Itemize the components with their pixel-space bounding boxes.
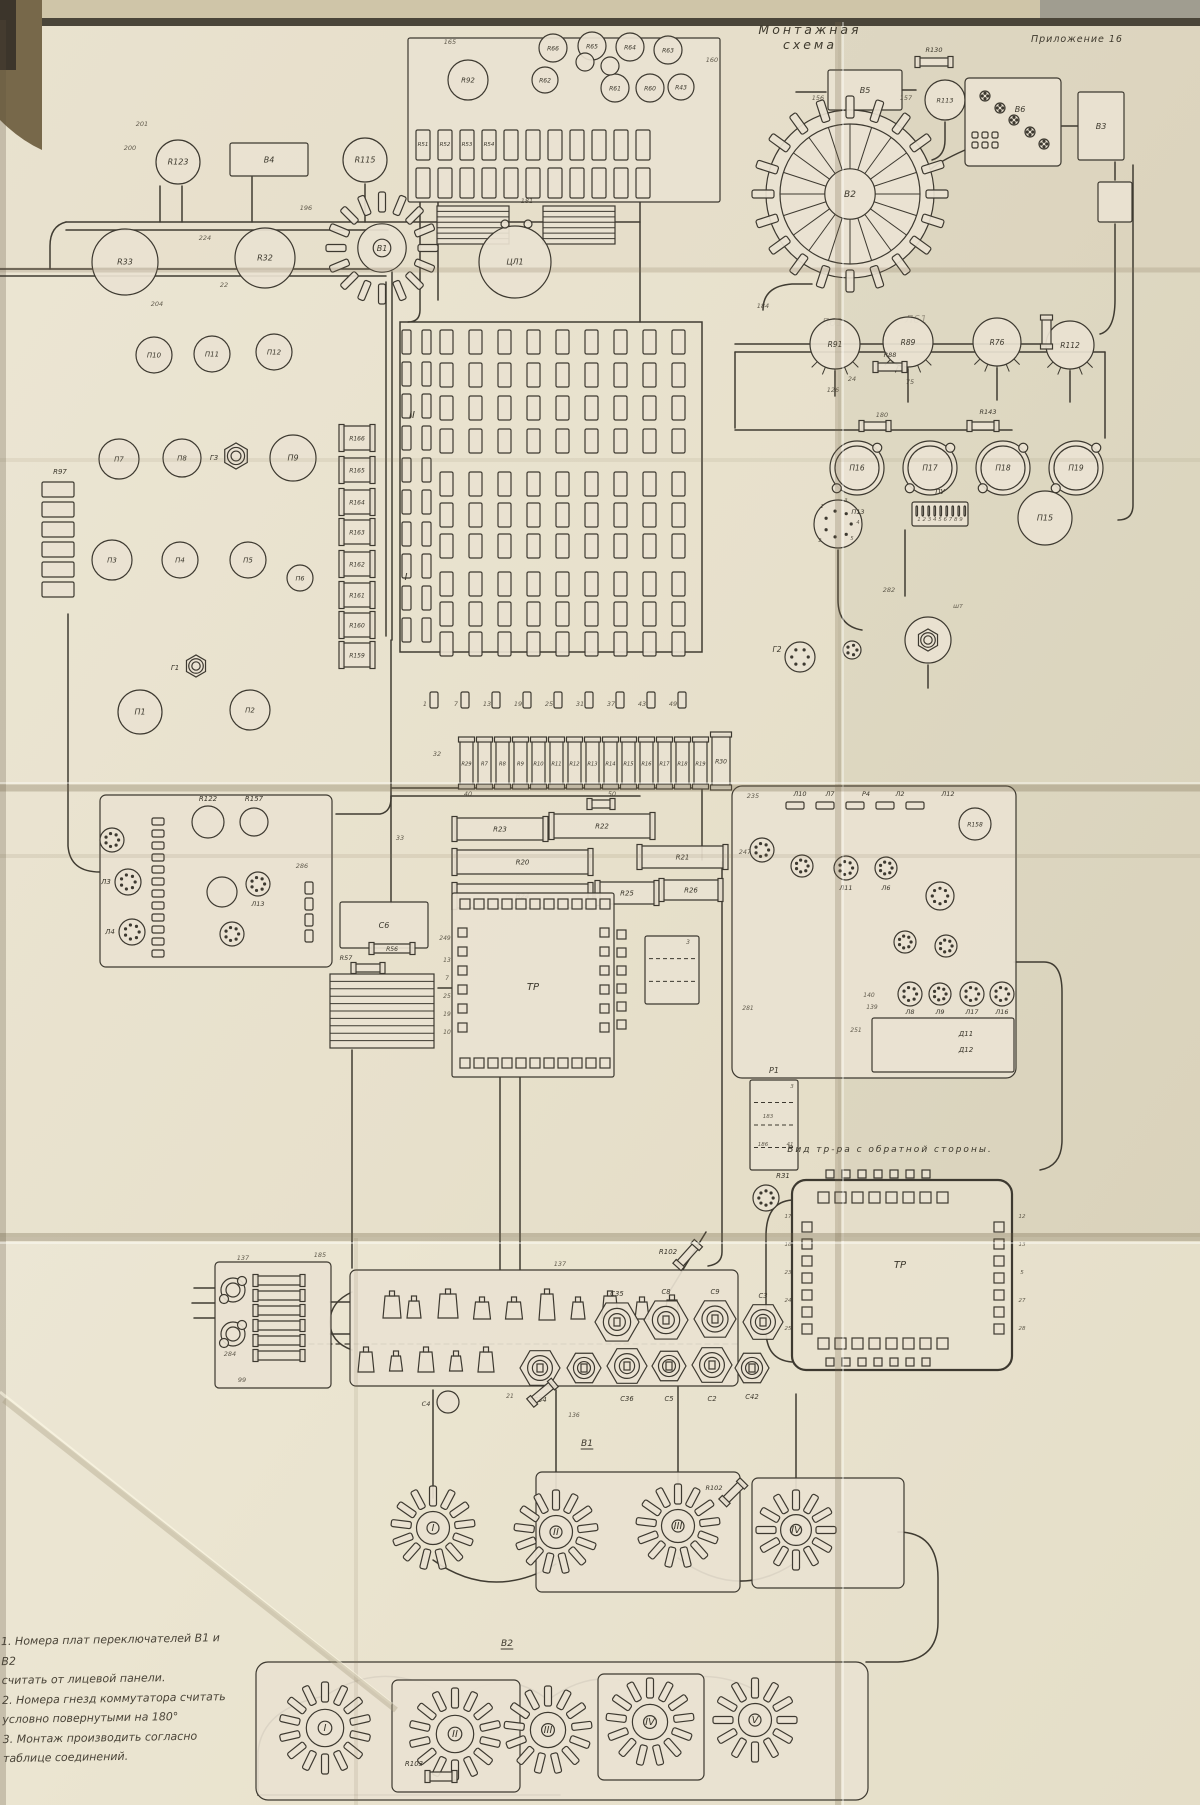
svg-text:180: 180 — [876, 411, 888, 419]
svg-text:R164: R164 — [349, 500, 365, 507]
svg-text:185: 185 — [314, 1251, 326, 1259]
box-В4: В4 — [230, 143, 308, 176]
svg-text:III: III — [674, 1521, 683, 1532]
svg-text:R17: R17 — [659, 762, 670, 768]
res — [967, 421, 999, 432]
svg-text:R62: R62 — [539, 78, 551, 85]
svg-text:Л17: Л17 — [964, 1008, 979, 1016]
lbl-Д11: Д11 — [958, 1030, 973, 1038]
lbl-II: II — [409, 410, 415, 421]
svg-text:1 2 3 4 5 6 7 8 9: 1 2 3 4 5 6 7 8 9 — [917, 517, 963, 523]
svg-text:R115: R115 — [355, 156, 376, 165]
svg-text:R12: R12 — [569, 762, 579, 768]
lbl-Л3: Л3 — [100, 878, 111, 886]
svg-text:П15: П15 — [1037, 514, 1053, 523]
svg-text:R29: R29 — [461, 762, 471, 768]
res-R8: R8 — [495, 737, 511, 789]
coil — [543, 206, 615, 244]
svg-text:21: 21 — [506, 1393, 514, 1400]
svg-text:R56: R56 — [386, 946, 398, 953]
svg-text:R102: R102 — [706, 1484, 723, 1492]
svg-text:R32: R32 — [257, 254, 273, 263]
circle-П12: П12 — [256, 334, 292, 370]
svg-text:R22: R22 — [595, 823, 609, 831]
res — [1041, 315, 1053, 349]
svg-text:R16: R16 — [641, 762, 652, 768]
res-R7: R7 — [477, 737, 493, 789]
box — [645, 936, 699, 1004]
res-R23: R23 — [452, 817, 548, 842]
num-25: 25 — [545, 700, 553, 708]
circle-R66: R66 — [539, 34, 567, 62]
svg-text:R130: R130 — [926, 46, 943, 54]
svg-text:R31: R31 — [776, 1172, 790, 1180]
svg-text:137: 137 — [554, 1260, 567, 1268]
res — [873, 362, 907, 373]
nut — [918, 629, 937, 651]
svg-text:П11: П11 — [205, 351, 219, 359]
circle-ЦЛ1: ЦЛ1 — [479, 226, 551, 298]
lbl-Л9: Л9 — [934, 1008, 944, 1016]
res-R16: R16 — [639, 737, 655, 789]
svg-text:R9: R9 — [517, 762, 524, 768]
svg-text:183: 183 — [763, 1114, 774, 1120]
res-R18: R18 — [675, 737, 691, 789]
svg-text:П4: П4 — [175, 557, 185, 565]
num-5: 5 — [850, 536, 853, 542]
svg-text:284: 284 — [224, 1350, 236, 1358]
res — [425, 1771, 457, 1783]
svg-text:1: 1 — [423, 700, 427, 708]
svg-text:281: 281 — [742, 1005, 753, 1012]
num-19: 19 — [443, 1011, 451, 1018]
socket — [119, 919, 145, 945]
num-28: 28 — [1019, 1326, 1026, 1332]
lbl-С4: С4 — [422, 1400, 431, 1408]
socket — [929, 983, 951, 1005]
svg-text:Л4: Л4 — [104, 928, 115, 936]
svg-text:137: 137 — [237, 1254, 250, 1262]
socket — [935, 935, 957, 957]
trapcap — [539, 1289, 555, 1320]
svg-text:I: I — [432, 1523, 435, 1534]
circle-R115: R115 — [343, 138, 387, 182]
socket — [791, 855, 813, 877]
circle-R61: R61 — [601, 74, 629, 102]
terms — [826, 1358, 930, 1366]
svg-text:Г1: Г1 — [171, 664, 179, 672]
lbl-R130: R130 — [926, 46, 943, 54]
circle — [524, 220, 532, 228]
svg-text:R163: R163 — [349, 530, 365, 537]
svg-text:12: 12 — [1019, 1214, 1026, 1220]
svg-text:V: V — [752, 1715, 760, 1726]
scanned-wiring-diagram-sheet: R123В4R115R33R32В120120022420422196R92R6… — [0, 0, 1200, 1805]
socket — [100, 828, 124, 852]
svg-text:204: 204 — [151, 300, 163, 308]
svg-text:ЦЛ1: ЦЛ1 — [506, 258, 523, 267]
svg-text:R64: R64 — [624, 45, 636, 52]
lbl-R157: R157 — [245, 795, 264, 803]
svg-text:4: 4 — [856, 520, 859, 526]
res-R161: R161 — [339, 582, 375, 609]
svg-text:157: 157 — [900, 94, 913, 102]
terms — [460, 1058, 610, 1068]
lbl-R122: R122 — [199, 795, 218, 803]
circle-R62: R62 — [532, 67, 558, 93]
circle-R158: R158 — [959, 808, 991, 840]
svg-text:С4: С4 — [422, 1400, 431, 1408]
num-204: 204 — [151, 300, 163, 308]
svg-text:R162: R162 — [349, 562, 365, 569]
box — [872, 1018, 1014, 1072]
lbl-Л4: Л4 — [104, 928, 115, 936]
svg-text:5: 5 — [850, 536, 853, 542]
svg-text:R15: R15 — [623, 762, 634, 768]
svg-text:24: 24 — [785, 1298, 792, 1304]
res-R164: R164 — [339, 489, 375, 516]
socket — [246, 872, 270, 896]
circle — [437, 1391, 459, 1413]
num-3: 3 — [686, 939, 690, 946]
num-25: 25 — [785, 1326, 792, 1332]
res — [253, 1275, 305, 1287]
flanged-П17: П17 — [903, 441, 957, 495]
res-R9: R9 — [513, 737, 529, 789]
svg-text:Л8: Л8 — [904, 1008, 914, 1016]
svg-text:140: 140 — [863, 992, 875, 999]
lbl-Л13: Л13 — [250, 900, 264, 908]
svg-text:251: 251 — [850, 1027, 861, 1034]
num-196: 196 — [300, 204, 312, 212]
svg-text:224: 224 — [199, 234, 211, 242]
lbl-В1: В1 — [581, 1439, 594, 1449]
num-139: 139 — [866, 1004, 878, 1011]
num-шт: шт — [953, 602, 963, 610]
svg-text:Л3: Л3 — [100, 878, 111, 886]
svg-text:ТР: ТР — [894, 1260, 907, 1271]
svg-text:С8: С8 — [661, 1288, 671, 1296]
res — [253, 1305, 305, 1317]
svg-text:Вид тр-ра с обратной стороны.: Вид тр-ра с обратной стороны. — [787, 1145, 993, 1155]
svg-text:С6: С6 — [379, 921, 390, 930]
num-249: 249 — [439, 935, 451, 942]
flanged-П18: П18 — [976, 441, 1030, 495]
lbl-В6: В6 — [1015, 105, 1026, 114]
res-R20: R20 — [452, 849, 593, 876]
lbl-Д12: Д12 — [958, 1046, 974, 1054]
svg-text:136: 136 — [568, 1412, 580, 1419]
lbl-R53: R53 — [462, 142, 473, 148]
svg-text:R160: R160 — [349, 623, 365, 630]
num-17: 17 — [785, 1214, 792, 1220]
svg-text:R14: R14 — [605, 762, 615, 768]
note-line: 2. Номера гнезд коммутатора считать — [2, 1686, 238, 1710]
box — [1098, 182, 1132, 222]
num-157: 157 — [900, 94, 913, 102]
svg-text:П2: П2 — [245, 707, 255, 715]
num-140: 140 — [863, 992, 875, 999]
svg-text:R157: R157 — [245, 795, 264, 803]
svg-text:R76: R76 — [990, 338, 1005, 347]
svg-text:П6: П6 — [295, 575, 304, 583]
svg-text:Д11: Д11 — [958, 1030, 973, 1038]
grid — [416, 130, 650, 160]
svg-text:200: 200 — [124, 144, 136, 152]
svg-text:186: 186 — [758, 1142, 769, 1148]
svg-text:R30: R30 — [715, 759, 727, 766]
circle-П1: П1 — [118, 690, 162, 734]
circle-R33: R33 — [92, 229, 158, 295]
num-2: 2 — [818, 538, 821, 544]
svg-text:R51: R51 — [418, 142, 429, 148]
svg-text:R122: R122 — [199, 795, 218, 803]
circle-R63: R63 — [654, 36, 682, 64]
svg-text:R52: R52 — [440, 142, 451, 148]
svg-text:R20: R20 — [516, 859, 530, 867]
grid — [916, 506, 966, 516]
svg-text:R26: R26 — [684, 887, 698, 895]
circle-П3: П3 — [92, 540, 132, 580]
lbl-I: I — [405, 572, 408, 583]
box — [750, 1080, 798, 1170]
num-284: 284 — [224, 1350, 236, 1358]
socket — [1009, 115, 1019, 125]
svg-text:10: 10 — [443, 1029, 451, 1036]
svg-text:В6: В6 — [1015, 105, 1026, 114]
num-43: 43 — [638, 700, 646, 708]
circle-R123: R123 — [156, 140, 200, 184]
svg-text:2: 2 — [818, 538, 821, 544]
sheet-title: Монтажная схема — [735, 22, 885, 52]
svg-text:шт: шт — [953, 602, 963, 610]
num-24: 24 — [848, 375, 856, 383]
socket — [990, 982, 1014, 1006]
circle-R92: R92 — [448, 60, 488, 100]
circle-R113: R113 — [925, 80, 965, 120]
radial-В1: В1 — [326, 192, 438, 304]
res-R26: R26 — [659, 879, 723, 902]
res-R11: R11 — [549, 737, 565, 789]
num-75: 75 — [906, 378, 914, 386]
num-21: 21 — [506, 1393, 514, 1400]
socket — [1039, 139, 1049, 149]
socket — [926, 882, 954, 910]
svg-text:С9: С9 — [710, 1288, 719, 1296]
circle-R43: R43 — [668, 74, 694, 100]
svg-text:II: II — [553, 1527, 559, 1538]
annex-label: Приложение 16 — [1022, 34, 1132, 45]
res-R13: R13 — [585, 737, 601, 789]
box-С6: С6 — [340, 902, 428, 948]
svg-text:П18: П18 — [995, 464, 1010, 473]
nut — [225, 443, 248, 469]
svg-text:R88: R88 — [884, 351, 897, 359]
lbl-Л8: Л8 — [904, 1008, 914, 1016]
num-12: 12 — [1019, 1214, 1026, 1220]
svg-text:25: 25 — [785, 1326, 792, 1332]
svg-text:7: 7 — [445, 975, 449, 982]
num-25: 25 — [443, 993, 451, 1000]
res — [253, 1320, 305, 1332]
circle-П6: П6 — [287, 565, 313, 591]
svg-text:R113: R113 — [937, 97, 954, 105]
box-В3: В3 — [1078, 92, 1124, 160]
svg-text:28: 28 — [1019, 1326, 1026, 1332]
socket — [894, 931, 916, 953]
res-R29: R29 — [459, 737, 475, 789]
svg-text:139: 139 — [866, 1004, 878, 1011]
svg-text:196: 196 — [300, 204, 312, 212]
lbl-Л17: Л17 — [964, 1008, 979, 1016]
lbl-ТР: ТР — [527, 982, 540, 993]
res-R160: R160 — [339, 612, 375, 639]
socket — [1025, 127, 1035, 137]
svg-text:Р1: Р1 — [769, 1066, 779, 1075]
num-286: 286 — [296, 862, 308, 870]
res-R162: R162 — [339, 551, 375, 578]
coil — [330, 974, 434, 1048]
svg-text:19: 19 — [514, 700, 522, 708]
circle — [501, 220, 509, 228]
lbl-R88: R88 — [884, 351, 897, 359]
svg-text:В2: В2 — [501, 1639, 513, 1649]
res-R10: R10 — [531, 737, 547, 789]
num-185: 185 — [314, 1251, 326, 1259]
svg-text:ПУ: ПУ — [935, 488, 945, 496]
svg-text:С5: С5 — [664, 1395, 673, 1403]
svg-text:R161: R161 — [349, 593, 365, 600]
num-251: 251 — [850, 1027, 861, 1034]
svg-text:В5: В5 — [860, 86, 871, 95]
svg-text:II: II — [409, 410, 415, 421]
lbl-R102: R102 — [659, 1248, 678, 1256]
num-224: 224 — [199, 234, 211, 242]
lbl-R52: R52 — [440, 142, 451, 148]
num-5: 5 — [1020, 1270, 1024, 1276]
svg-text:19: 19 — [443, 1011, 451, 1018]
num-1: 1 — [820, 504, 823, 510]
num-137: 137 — [237, 1254, 250, 1262]
schematic-canvas: R123В4R115R33R32В120120022420422196R92R6… — [0, 0, 1200, 1805]
svg-text:37: 37 — [607, 700, 616, 708]
svg-text:3: 3 — [686, 939, 690, 946]
svg-text:П16: П16 — [849, 464, 864, 473]
svg-text:R112: R112 — [1060, 341, 1080, 350]
svg-text:31: 31 — [576, 700, 584, 708]
svg-text:235: 235 — [747, 792, 759, 800]
lbl-R31: R31 — [776, 1172, 790, 1180]
res — [915, 57, 953, 68]
num-281: 281 — [742, 1005, 753, 1012]
res — [587, 799, 615, 810]
socket — [960, 982, 984, 1006]
lbl-ТР: ТР — [894, 1260, 907, 1271]
res — [253, 1335, 305, 1347]
svg-text:181: 181 — [521, 197, 533, 205]
svg-text:П12: П12 — [267, 349, 282, 357]
svg-text:R89: R89 — [901, 338, 916, 347]
num-49: 49 — [669, 700, 677, 708]
svg-text:В3: В3 — [1096, 122, 1107, 131]
svg-text:ТР: ТР — [527, 982, 540, 993]
svg-text:R10: R10 — [533, 762, 544, 768]
svg-text:I: I — [405, 572, 408, 583]
res-R19: R19 — [693, 737, 709, 789]
svg-text:П13: П13 — [851, 508, 864, 516]
num-136: 136 — [568, 1412, 580, 1419]
num-3: 3 — [844, 498, 847, 504]
num-1: 1 — [423, 700, 427, 708]
svg-text:R66: R66 — [547, 46, 559, 53]
num-33: 33 — [396, 834, 404, 842]
svg-text:R13: R13 — [587, 762, 597, 768]
note-line: таблице соединений. — [3, 1745, 239, 1769]
grid — [440, 472, 685, 558]
svg-text:R25: R25 — [620, 890, 634, 898]
lbl-Л6: Л6 — [880, 884, 890, 892]
circle-П5: П5 — [230, 542, 266, 578]
num-23: 23 — [785, 1270, 792, 1276]
lbl-R51: R51 — [418, 142, 429, 148]
svg-text:В2: В2 — [844, 190, 856, 200]
socket — [753, 1185, 779, 1211]
svg-text:Д12: Д12 — [958, 1046, 974, 1054]
num-22: 22 — [220, 281, 228, 289]
svg-text:43: 43 — [638, 700, 646, 708]
svg-text:249: 249 — [439, 935, 451, 942]
svg-text:Л9: Л9 — [934, 1008, 944, 1016]
circle-П2: П2 — [230, 690, 270, 730]
res — [351, 963, 385, 974]
svg-text:R33: R33 — [117, 258, 133, 267]
svg-text:Л16: Л16 — [994, 1008, 1008, 1016]
circle-R64: R64 — [616, 33, 644, 61]
svg-text:Л13: Л13 — [250, 900, 264, 908]
res-R166: R166 — [339, 425, 375, 452]
num-24: 24 — [785, 1298, 792, 1304]
num-165: 165 — [444, 38, 456, 46]
svg-text:П17: П17 — [922, 464, 937, 473]
svg-text:165: 165 — [444, 38, 456, 46]
svg-text:R18: R18 — [677, 762, 688, 768]
circle — [207, 877, 237, 907]
svg-text:160: 160 — [706, 56, 718, 64]
svg-text:R7: R7 — [481, 762, 489, 768]
num-1 2 3 4 5 6 7 8 9: 1 2 3 4 5 6 7 8 9 — [917, 517, 963, 523]
svg-text:R123: R123 — [168, 158, 189, 167]
grid — [430, 692, 686, 708]
grid — [416, 168, 650, 198]
flanged-П19: П19 — [1049, 441, 1103, 495]
svg-text:24: 24 — [848, 375, 856, 383]
svg-text:Л6: Л6 — [880, 884, 890, 892]
svg-text:R65: R65 — [586, 44, 598, 51]
num-186: 186 — [758, 1142, 769, 1148]
svg-text:27: 27 — [1019, 1298, 1026, 1304]
svg-text:R8: R8 — [499, 762, 507, 768]
svg-text:П1: П1 — [134, 708, 145, 717]
svg-text:1: 1 — [820, 504, 823, 510]
terms — [460, 899, 610, 909]
res-R163: R163 — [339, 519, 375, 546]
circle — [192, 806, 224, 838]
svg-text:25: 25 — [545, 700, 553, 708]
num-32: 32 — [433, 750, 441, 758]
lbl-Р1: Р1 — [769, 1066, 779, 1075]
svg-text:R57: R57 — [340, 954, 354, 962]
num-200: 200 — [124, 144, 136, 152]
